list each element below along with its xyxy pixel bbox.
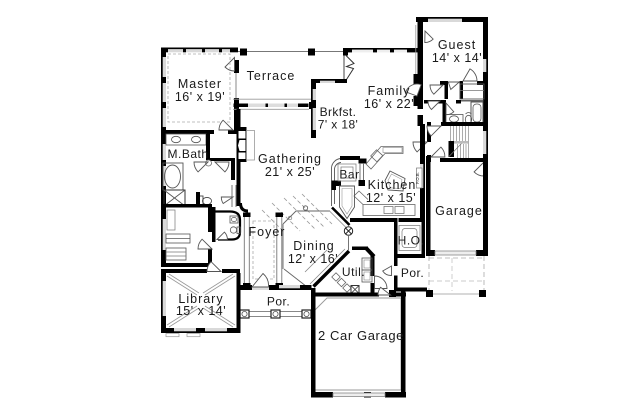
svg-text:7' x 18': 7' x 18' bbox=[318, 118, 358, 132]
svg-text:21' x 25': 21' x 25' bbox=[265, 165, 315, 179]
svg-text:15' x 14': 15' x 14' bbox=[176, 304, 226, 318]
svg-text:Kitchen: Kitchen bbox=[368, 178, 417, 192]
svg-text:Dining: Dining bbox=[293, 239, 334, 253]
svg-text:H.O.: H.O. bbox=[398, 234, 425, 248]
svg-text:Family: Family bbox=[368, 84, 411, 98]
svg-text:Garage: Garage bbox=[435, 204, 483, 218]
svg-text:Bar: Bar bbox=[339, 168, 359, 182]
svg-text:16' x 22': 16' x 22' bbox=[364, 97, 414, 111]
svg-text:2 Car Garage: 2 Car Garage bbox=[318, 328, 404, 343]
svg-text:Gathering: Gathering bbox=[258, 152, 322, 166]
svg-text:Por.: Por. bbox=[401, 266, 424, 280]
svg-text:12' x 15': 12' x 15' bbox=[366, 191, 416, 205]
svg-text:Util.: Util. bbox=[342, 265, 365, 279]
svg-text:16' x 19': 16' x 19' bbox=[175, 90, 225, 104]
svg-text:Master: Master bbox=[178, 77, 222, 91]
svg-text:Por.: Por. bbox=[267, 295, 290, 309]
svg-text:14' x 14': 14' x 14' bbox=[432, 51, 482, 65]
svg-text:Terrace: Terrace bbox=[247, 69, 296, 83]
svg-text:Guest: Guest bbox=[438, 38, 476, 52]
svg-text:12' x 16': 12' x 16' bbox=[288, 252, 338, 266]
svg-text:M.Bath: M.Bath bbox=[167, 147, 208, 161]
svg-text:Foyer: Foyer bbox=[249, 225, 286, 239]
